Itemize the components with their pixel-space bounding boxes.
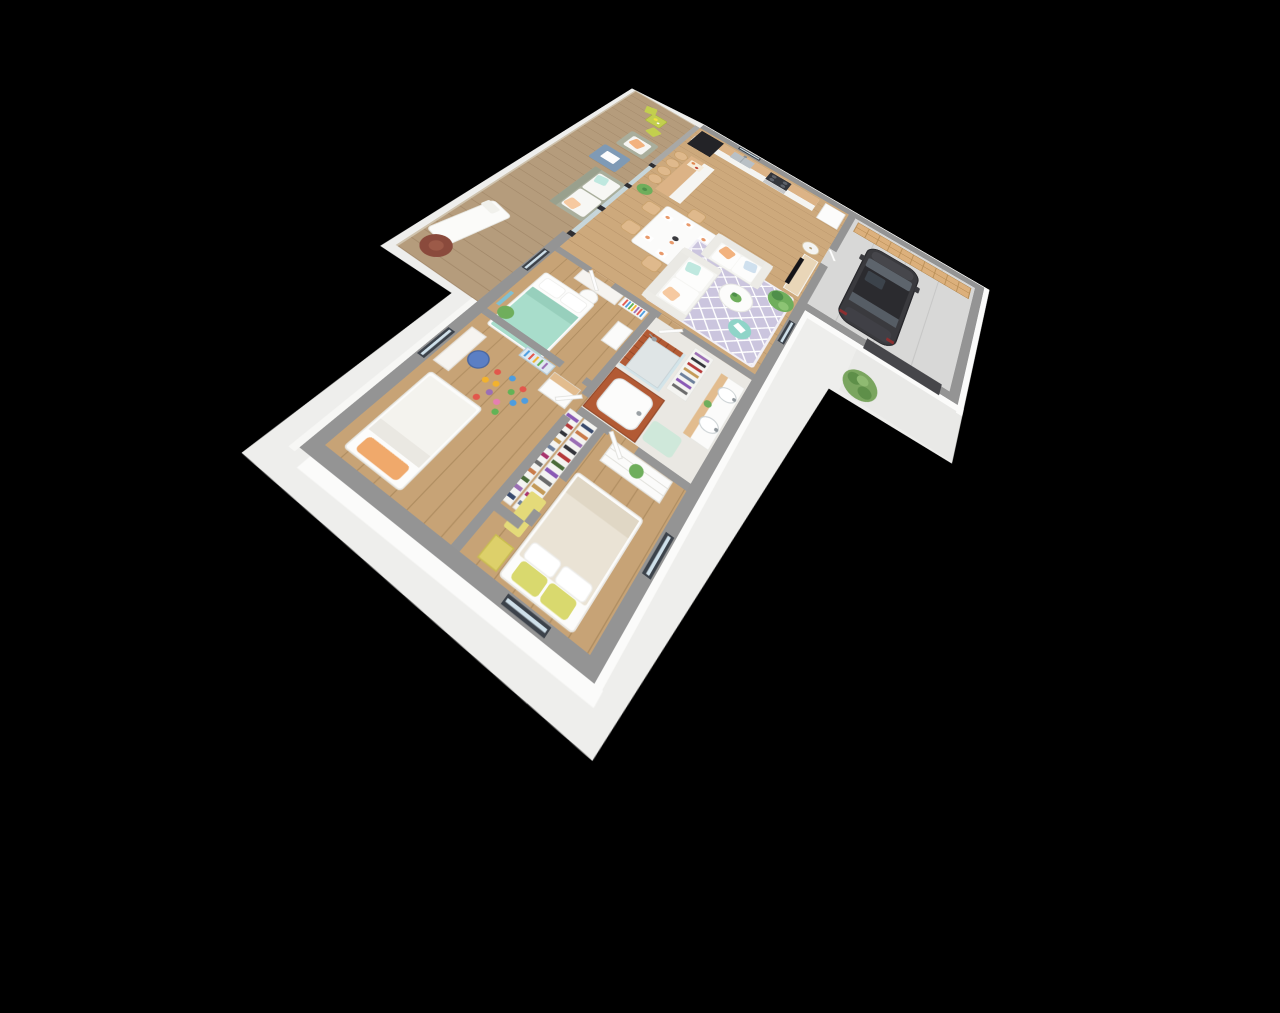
render-stage [0, 0, 1280, 720]
floor-plan-svg [103, 75, 996, 1013]
floor-plan-3d [103, 75, 996, 1013]
